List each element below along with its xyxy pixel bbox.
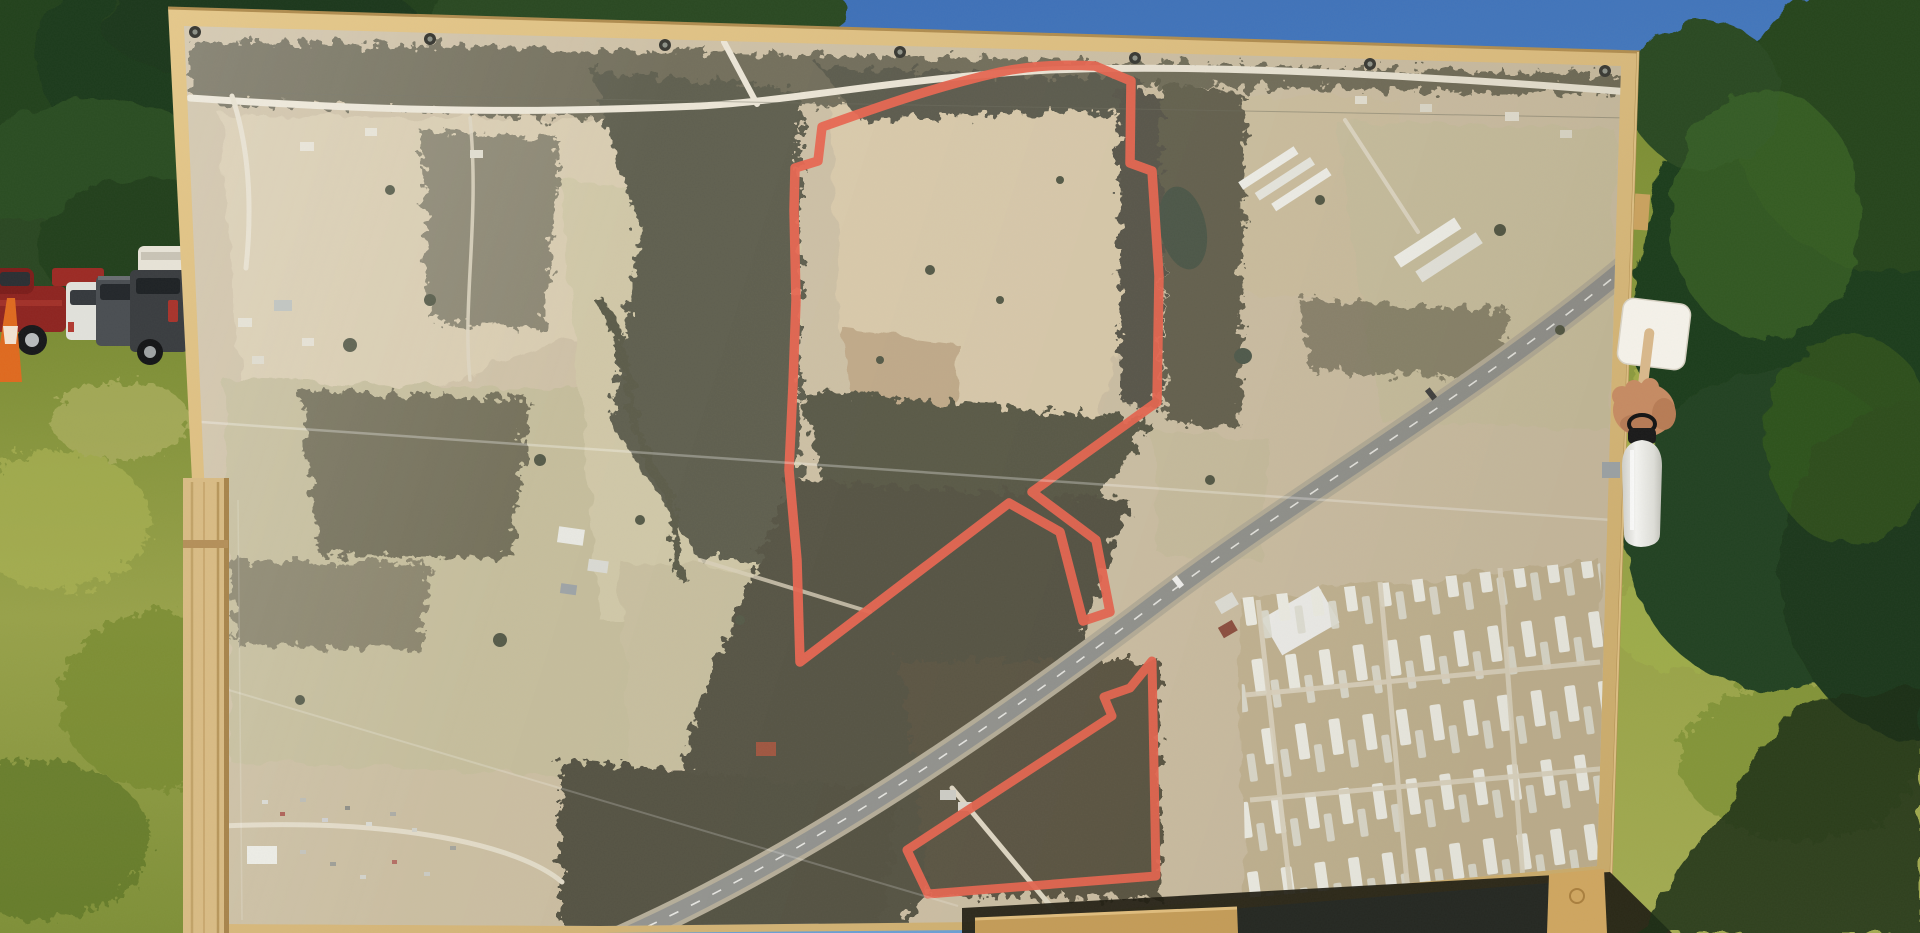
photo-stage: Land sale aerial map sign in a field (0, 0, 1920, 933)
photo-grain (0, 0, 1920, 933)
foreground (0, 0, 1920, 933)
photo-svg: Land sale aerial map sign in a field (0, 0, 1920, 933)
